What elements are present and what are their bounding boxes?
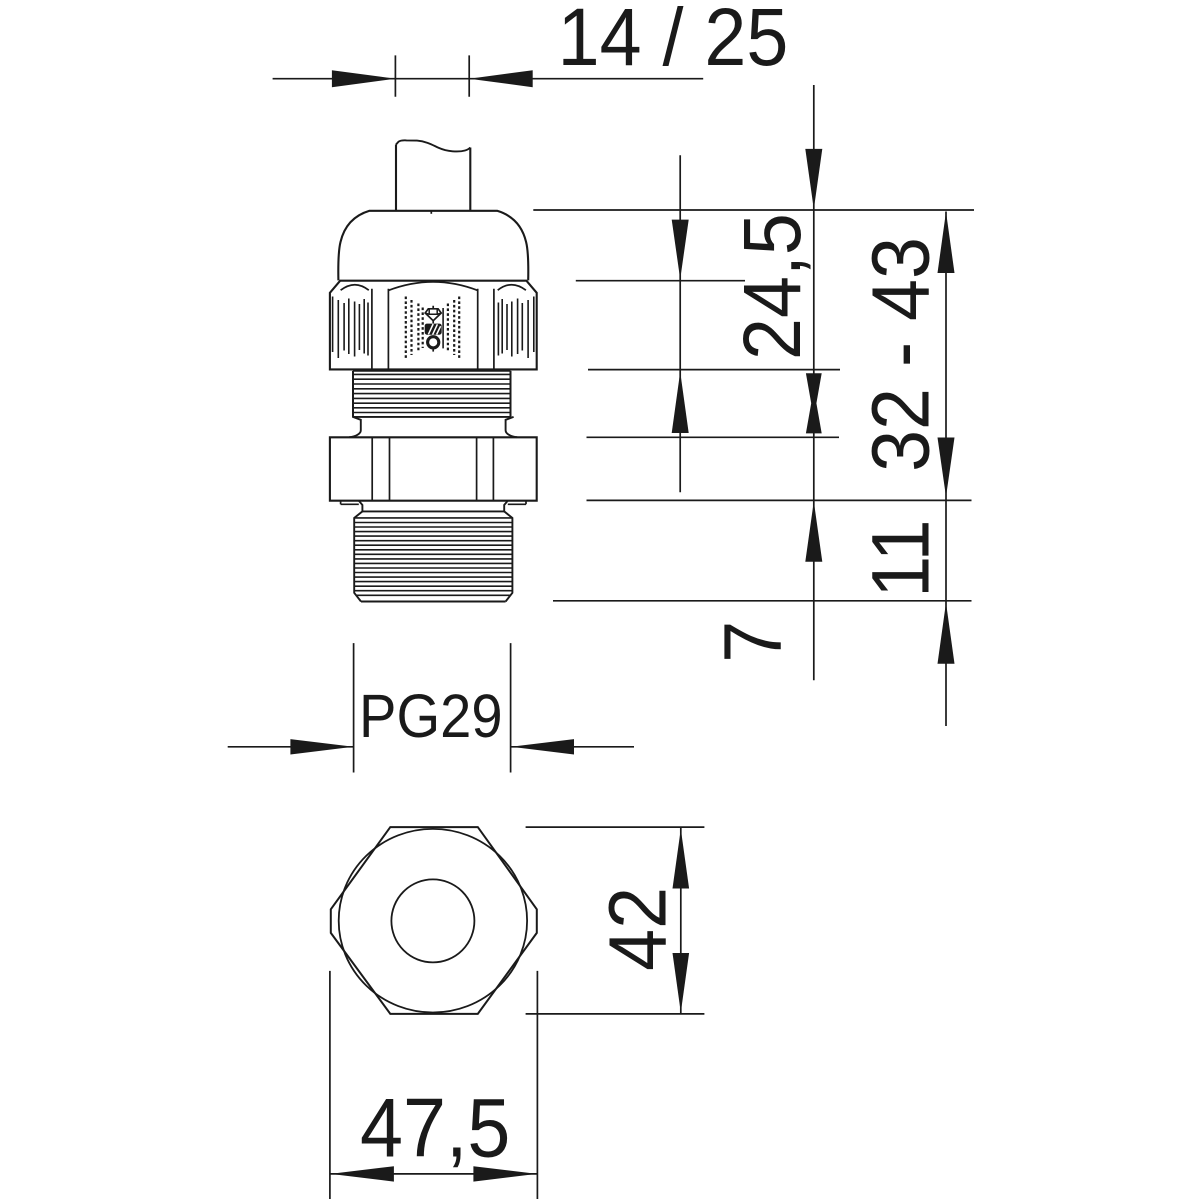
svg-text:PG29: PG29 <box>359 683 503 751</box>
svg-text:24,5: 24,5 <box>726 213 818 360</box>
svg-text:7: 7 <box>707 621 799 663</box>
svg-text:32 - 43: 32 - 43 <box>855 237 947 472</box>
svg-text:42: 42 <box>592 887 684 971</box>
svg-text:47,5: 47,5 <box>360 1082 510 1176</box>
svg-text:11: 11 <box>855 519 947 597</box>
svg-text:14 / 25: 14 / 25 <box>558 0 789 82</box>
